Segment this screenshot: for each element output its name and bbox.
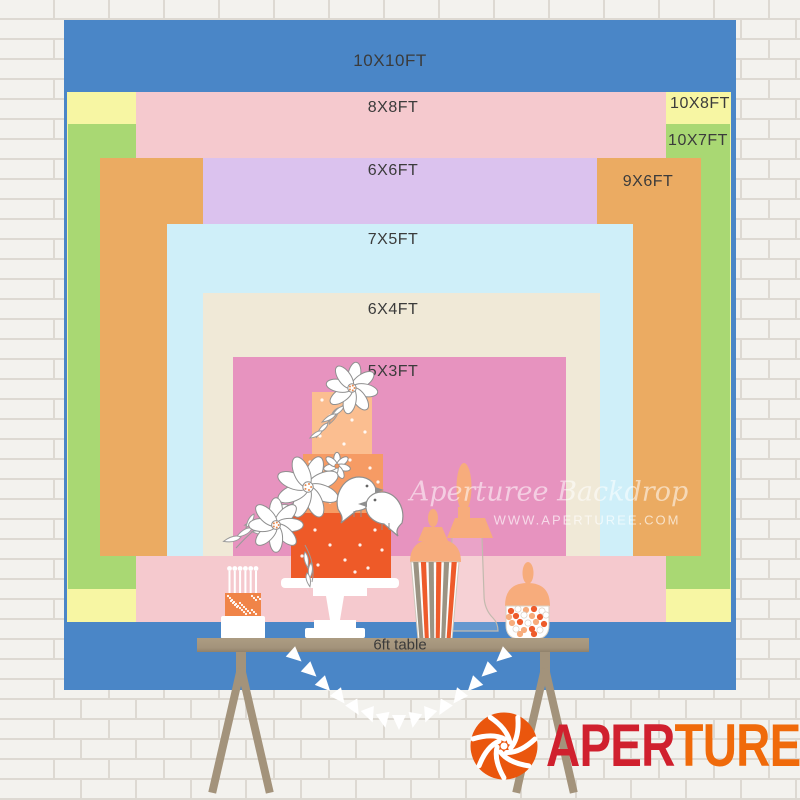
mini-cake <box>221 566 265 639</box>
watermark-script: Aperturee Backdrop <box>410 477 689 508</box>
cake-stand <box>281 578 399 638</box>
candy-jar <box>505 562 550 639</box>
logo-text-red: APER <box>546 712 675 779</box>
logo-wordmark: APERTUREE <box>546 716 800 776</box>
small-jar-lid-silhouette <box>418 509 448 541</box>
table-size-label: 6ft table <box>373 637 426 654</box>
logo-text-orange: TUREE <box>675 712 800 779</box>
backdrop-size-chart-image: 10X10FT10X8FT10X7FT8X8FT9X6FT6X6FT7X5FT6… <box>0 0 800 800</box>
dessert-table-scene <box>0 0 800 800</box>
aperturee-logo: APERTUREE <box>464 706 800 786</box>
popcorn-box <box>410 539 461 639</box>
aperture-icon <box>464 706 544 786</box>
watermark-url: WWW.APERTUREE.COM <box>494 513 681 528</box>
